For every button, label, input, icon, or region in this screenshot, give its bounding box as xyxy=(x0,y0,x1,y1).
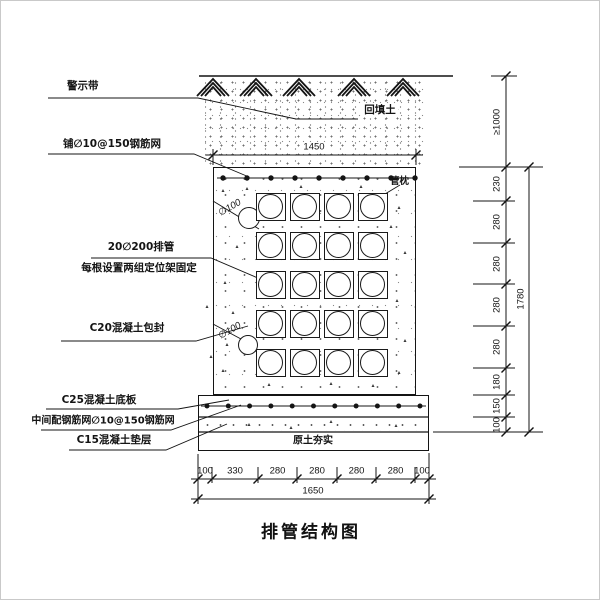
drawing-title: 排管结构图 xyxy=(261,518,361,543)
pipe-r4c4 xyxy=(360,311,385,336)
dim-bottom-1: 330 xyxy=(227,466,243,476)
slab-mesh-dot xyxy=(418,404,423,409)
texture-speck: ▴ xyxy=(267,382,270,388)
pipe-bank-structure-drawing: 警示带 铺∅10@150钢筋网 20∅200排管 每根设置两组定位架固定 C20… xyxy=(0,0,600,600)
ground-hatch-3 xyxy=(342,83,366,96)
dim-right-1: 230 xyxy=(492,176,502,192)
dim-right-6: 180 xyxy=(492,374,502,390)
dim-right-5: 280 xyxy=(492,339,502,355)
texture-speck: ▴ xyxy=(329,419,332,425)
slab-mesh-dot xyxy=(226,404,231,409)
ground-hatch-4 xyxy=(391,83,415,96)
pipe-r2c3 xyxy=(326,233,351,258)
texture-speck: ▴ xyxy=(397,205,400,211)
texture-speck: ▴ xyxy=(221,368,224,374)
dim-right-7: 150 xyxy=(492,398,502,414)
slab-mesh-dot xyxy=(290,404,295,409)
texture-speck: ▴ xyxy=(403,250,406,256)
texture-speck: ▴ xyxy=(389,224,392,230)
top-mesh-dot xyxy=(412,175,417,180)
label-encasement: C20混凝土包封 xyxy=(90,323,165,335)
dim-bottom-0: 100 xyxy=(197,466,213,476)
pipe-r3c4 xyxy=(360,272,385,297)
texture-speck: ▴ xyxy=(371,383,374,389)
dim-bottom-5: 280 xyxy=(388,466,404,476)
texture-speck: ▴ xyxy=(395,298,398,304)
top-mesh-dot xyxy=(316,175,321,180)
texture-speck: ▴ xyxy=(245,186,248,192)
dim-bottom-3: 280 xyxy=(309,466,325,476)
top-mesh-dot xyxy=(220,175,225,180)
label-top-mesh: 铺∅10@150钢筋网 xyxy=(63,139,161,151)
slab-mesh-dot xyxy=(332,404,337,409)
slab-mesh-dot xyxy=(375,404,380,409)
label-pipe-bank-line1: 20∅200排管 xyxy=(108,242,175,254)
leader-top-mesh xyxy=(48,154,249,177)
slab-mesh-dot xyxy=(354,404,359,409)
label-compacted-soil: 原土夯实 xyxy=(293,436,333,447)
pipe-r4c3 xyxy=(326,311,351,336)
texture-speck: ▴ xyxy=(221,188,224,194)
pipe-r4c2 xyxy=(292,311,317,336)
texture-speck: ▴ xyxy=(397,370,400,376)
dim-right-4: 280 xyxy=(492,297,502,313)
texture-speck: ▴ xyxy=(247,422,250,428)
dim-bottom-6: 100 xyxy=(414,466,430,476)
pipe-r5c3 xyxy=(326,350,351,375)
texture-speck: ▴ xyxy=(359,184,362,190)
ground-hatch-1 xyxy=(244,83,268,96)
pipe-r3c1 xyxy=(258,272,283,297)
top-mesh-dot xyxy=(268,175,273,180)
label-warning-tape: 警示带 xyxy=(67,81,99,93)
label-cushion: C15混凝土垫层 xyxy=(77,435,152,447)
slab-mesh-dot xyxy=(268,404,273,409)
pipe-r1c2 xyxy=(292,194,317,219)
texture-speck: ▴ xyxy=(205,304,208,310)
texture-speck: ▴ xyxy=(225,342,228,348)
texture-speck: ▴ xyxy=(394,423,397,429)
label-base-slab: C25混凝土底板 xyxy=(62,395,137,407)
dim-right-total: 1780 xyxy=(516,288,526,309)
top-mesh-dot xyxy=(292,175,297,180)
label-pipe-bank-line2: 每根设置两组定位架固定 xyxy=(81,263,197,275)
dim-top-width: 1450 xyxy=(301,142,326,152)
dim-bottom-4: 280 xyxy=(349,466,365,476)
label-backfill: 回填土 xyxy=(362,105,398,117)
pipe-r2c1 xyxy=(258,233,283,258)
top-mesh-dot xyxy=(340,175,345,180)
label-pipe-support: 管枕 xyxy=(390,177,409,187)
dim-right-0: ≥1000 xyxy=(492,108,502,134)
pipe-r2c2 xyxy=(292,233,317,258)
texture-speck: ▴ xyxy=(299,184,302,190)
dim-bottom-total: 1650 xyxy=(302,486,323,496)
texture-speck: ▴ xyxy=(289,425,292,431)
pipe-r5c4 xyxy=(360,350,385,375)
ground-hatch-0 xyxy=(201,83,225,96)
dim-bottom-2: 280 xyxy=(270,466,286,476)
dim-right-2: 280 xyxy=(492,214,502,230)
texture-speck: ▴ xyxy=(235,244,238,250)
texture-speck: ▴ xyxy=(231,310,234,316)
slab-mesh-dot xyxy=(247,404,252,409)
pipe-r2c4 xyxy=(360,233,385,258)
texture-speck: ▴ xyxy=(209,354,212,360)
slab-mesh-dot xyxy=(311,404,316,409)
dim-right-8: 100 xyxy=(492,417,502,433)
small-pipe-circle-lower xyxy=(238,335,258,355)
ground-hatch-2 xyxy=(287,83,311,96)
pipe-r4c1 xyxy=(258,311,283,336)
texture-speck: ▴ xyxy=(223,280,226,286)
leader-warning-tape xyxy=(48,98,358,119)
label-slab-mesh: 中间配钢筋网∅10@150钢筋网 xyxy=(31,416,174,427)
texture-speck: ▴ xyxy=(329,381,332,387)
pipe-r3c2 xyxy=(292,272,317,297)
pipe-r3c3 xyxy=(326,272,351,297)
texture-speck: ▴ xyxy=(403,338,406,344)
dim-right-3: 280 xyxy=(492,256,502,272)
pipe-r5c1 xyxy=(258,350,283,375)
top-mesh-dot xyxy=(364,175,369,180)
pipe-r5c2 xyxy=(292,350,317,375)
pipe-r1c3 xyxy=(326,194,351,219)
slab-mesh-dot xyxy=(396,404,401,409)
pipe-r1c4 xyxy=(360,194,385,219)
pipe-r1c1 xyxy=(258,194,283,219)
